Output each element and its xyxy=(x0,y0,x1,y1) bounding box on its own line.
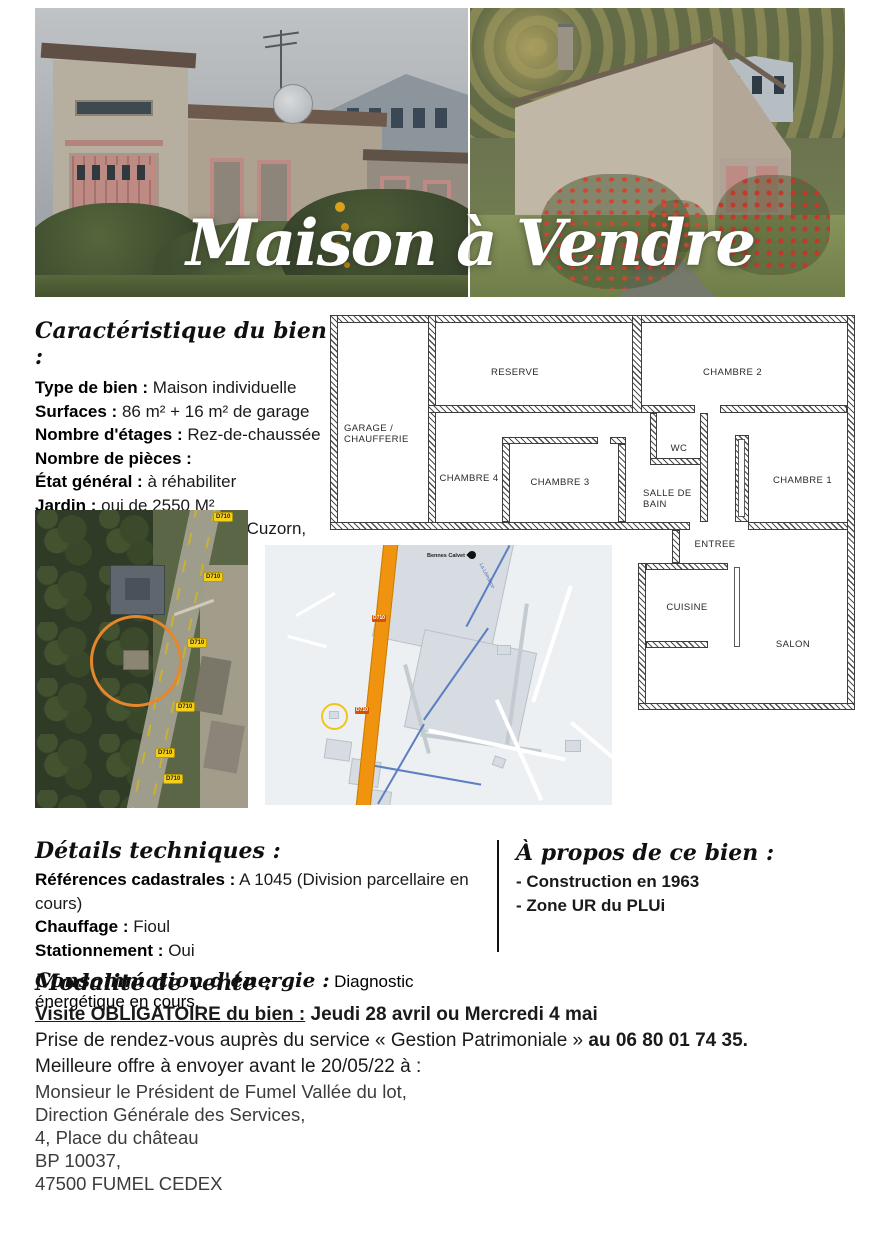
about-heading: À propos de ce bien : xyxy=(516,840,836,866)
plan-wall xyxy=(748,522,855,530)
plan-wall xyxy=(502,437,598,444)
road-chip-d710: D710 xyxy=(187,638,207,648)
plan-closet-inner xyxy=(738,439,745,517)
address-line: Monsieur le Président de Fumel Vallée du… xyxy=(35,1080,825,1103)
room-label-garage: GARAGE / CHAUFFERIE xyxy=(344,423,424,445)
characteristic-row: Type de bien : Maison individuelle xyxy=(35,376,330,400)
trees-yellow-patch xyxy=(470,8,600,98)
map-building xyxy=(565,740,581,752)
appointment-text: Prise de rendez-vous auprès du service «… xyxy=(35,1030,588,1051)
plan-wall xyxy=(428,315,436,530)
plan-wall xyxy=(638,703,855,710)
appointment-phone: au 06 80 01 74 35. xyxy=(588,1030,748,1051)
characteristic-row: Nombre de pièces : xyxy=(35,447,330,471)
visit-label: Visite OBLIGATOIRE du bien : xyxy=(35,1004,305,1025)
room-label-wc: WC xyxy=(657,443,701,454)
characteristic-row: Nombre d'étages : Rez-de-chaussée xyxy=(35,423,330,447)
plan-wall xyxy=(330,315,338,530)
plan-wall xyxy=(428,405,695,413)
flyer-page: Maison à Vendre Caractéristique du bien … xyxy=(0,0,875,1238)
address-line: BP 10037, xyxy=(35,1149,825,1172)
satellite-view: D710 D710 D710 D710 D710 D710 xyxy=(35,510,248,808)
plan-wall xyxy=(610,437,626,444)
characteristics-heading: Caractéristique du bien : xyxy=(35,318,330,370)
detail-row: Stationnement : Oui xyxy=(35,939,485,963)
garage-lintel xyxy=(65,140,163,146)
room-label-cuisine: CUISINE xyxy=(648,602,726,613)
plan-wall xyxy=(632,315,642,413)
map-building xyxy=(497,645,511,655)
plan-door-leaf xyxy=(734,567,740,647)
page-title: Maison à Vendre xyxy=(110,206,830,281)
offer-deadline-line: Meilleure offre à envoyer avant le 20/05… xyxy=(35,1054,825,1080)
technical-details-heading: Détails techniques : xyxy=(35,838,485,864)
room-label-chambre2: CHAMBRE 2 xyxy=(660,367,805,378)
characteristic-row: État général : à réhabiliter xyxy=(35,470,330,494)
map-building xyxy=(492,755,507,769)
map-road-chip-d710: D710 xyxy=(355,707,369,714)
appointment-line: Prise de rendez-vous auprès du service «… xyxy=(35,1028,825,1054)
visit-value: Jeudi 28 avril ou Mercredi 4 mai xyxy=(305,1004,598,1025)
map-white-road xyxy=(295,592,335,617)
plan-wall xyxy=(330,522,690,530)
satellite-dish-icon xyxy=(273,84,313,124)
visit-line: Visite OBLIGATOIRE du bien : Jeudi 28 av… xyxy=(35,1002,825,1028)
road-chip-d710: D710 xyxy=(155,748,175,758)
detail-row: Chauffage : Fioul xyxy=(35,915,485,939)
river-line xyxy=(377,724,425,805)
plan-wall xyxy=(646,563,728,570)
plan-wall xyxy=(847,315,855,710)
map-white-road xyxy=(531,585,573,702)
room-label-chambre1: CHAMBRE 1 xyxy=(760,475,845,486)
about-item: - Construction en 1963 xyxy=(516,870,836,894)
map-white-road xyxy=(287,635,326,648)
road-chip-d710: D710 xyxy=(175,702,195,712)
property-highlight-circle-small xyxy=(321,703,348,730)
road-chip-d710: D710 xyxy=(213,512,233,522)
sale-terms-section: Modalité de vente : Visite OBLIGATOIRE d… xyxy=(35,970,825,1195)
sale-terms-heading: Modalité de vente : xyxy=(35,970,825,996)
street-map: D710 D710 La Lémance Bennes Calvet xyxy=(265,545,612,805)
plan-wall xyxy=(700,413,708,522)
plan-wall xyxy=(720,405,847,413)
garage-door-windows xyxy=(77,165,151,180)
address-line: Direction Générale des Services, xyxy=(35,1103,825,1126)
room-label-entree: ENTREE xyxy=(670,539,760,550)
about-item: - Zone UR du PLUi xyxy=(516,894,836,918)
mansion-roof xyxy=(125,578,150,600)
about-section: À propos de ce bien : - Construction en … xyxy=(516,840,836,917)
address-line: 4, Place du château xyxy=(35,1126,825,1149)
room-label-salle-de-bain: SALLE DE BAIN xyxy=(643,488,701,510)
map-building xyxy=(324,738,353,761)
garage-upper-window xyxy=(75,100,153,116)
characteristic-row: Surfaces : 86 m² + 16 m² de garage xyxy=(35,400,330,424)
room-label-reserve: RESERVE xyxy=(440,367,590,378)
room-label-chambre4: CHAMBRE 4 xyxy=(434,473,504,484)
address-line: 47500 FUMEL CEDEX xyxy=(35,1172,825,1195)
room-label-chambre3: CHAMBRE 3 xyxy=(510,477,610,488)
section-divider xyxy=(497,840,499,952)
road-chip-d710: D710 xyxy=(163,774,183,784)
road-chip-d710: D710 xyxy=(203,572,223,582)
room-label-salon: SALON xyxy=(750,639,836,650)
property-highlight-circle xyxy=(90,615,182,707)
plan-wall xyxy=(618,444,626,522)
chimney xyxy=(558,24,573,70)
plan-wall xyxy=(638,563,646,710)
map-road-chip-d710: D710 xyxy=(372,615,386,622)
plan-wall xyxy=(646,641,708,648)
poi-label: Bennes Calvet xyxy=(427,553,465,559)
detail-row: Références cadastrales : A 1045 (Divisio… xyxy=(35,868,485,915)
plan-wall xyxy=(330,315,855,323)
